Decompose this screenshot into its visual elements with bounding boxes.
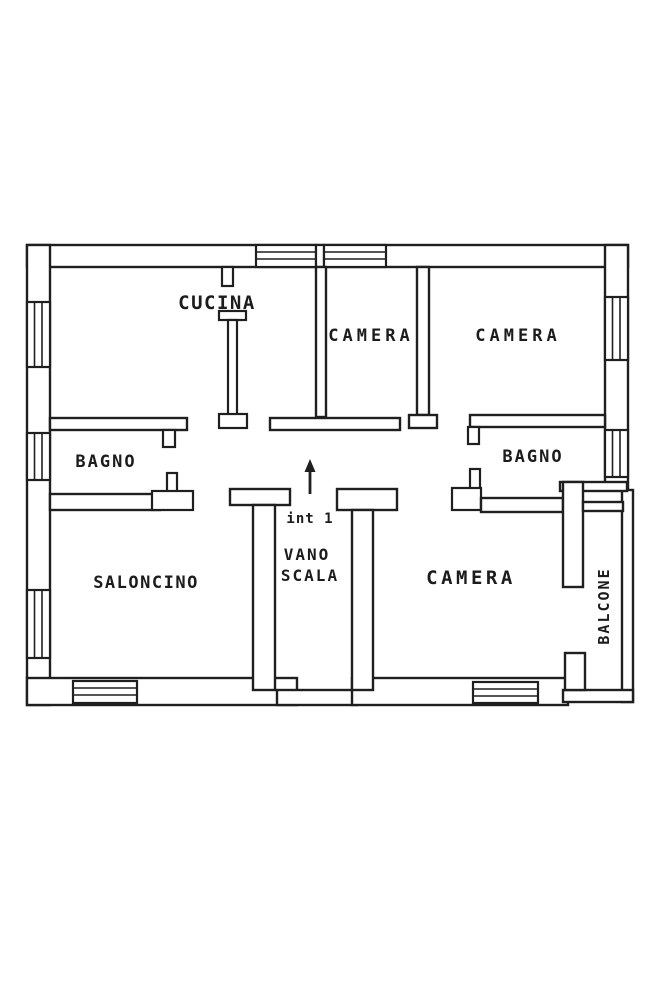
- window-icon-bottom-2: [473, 682, 538, 703]
- window-icon-bottom-1: [73, 681, 137, 703]
- wall-saloncino-top: [50, 494, 160, 510]
- room-label-saloncino: SALONCINO: [93, 573, 199, 593]
- wall-foot: [409, 415, 437, 428]
- room-label-camera-top-left: CAMERA: [328, 326, 413, 346]
- door-jamb: [163, 430, 175, 447]
- door-jamb-balcone: [565, 653, 585, 690]
- room-label-balcone: BALCONE: [595, 567, 613, 644]
- window-symbols: [27, 245, 628, 703]
- window-icon-top-2: [324, 245, 386, 267]
- room-label-camera-bottom: CAMERA: [426, 567, 516, 589]
- room-label-vano: VANO: [284, 545, 331, 564]
- window-icon-right-1: [605, 297, 628, 360]
- wall-stairwell-left: [230, 489, 290, 690]
- door-jamb-cucina: [222, 267, 233, 286]
- wall-segment-bottom-stair: [277, 690, 357, 705]
- exterior-walls: [27, 245, 633, 705]
- wall-corridor-upper-mid: [270, 418, 400, 430]
- scanned-floor-plan-page: CUCINA CAMERA CAMERA BAGNO BAGNO SALONCI…: [0, 0, 666, 999]
- door-jamb: [468, 427, 479, 444]
- window-icon-left-1: [27, 302, 50, 367]
- room-labels: CUCINA CAMERA CAMERA BAGNO BAGNO SALONCI…: [75, 292, 613, 645]
- window-icon-top-1: [256, 245, 316, 267]
- door-jamb-saloncino: [152, 473, 193, 510]
- wall-segment-balcony-right: [622, 490, 633, 702]
- floor-plan-drawing: CUCINA CAMERA CAMERA BAGNO BAGNO SALONCI…: [0, 0, 666, 999]
- window-icon-left-2: [27, 433, 50, 480]
- wall-stairwell-right: [337, 489, 397, 690]
- room-label-bagno-right: BAGNO: [502, 447, 563, 467]
- wall-cucina-divider: [219, 311, 247, 428]
- wall-cucina-camera1: [316, 267, 326, 417]
- entrance-unit-label: int 1: [286, 511, 333, 527]
- wall-segment-balcony-bottom: [563, 690, 633, 702]
- window-icon-right-2: [605, 430, 628, 477]
- entrance-arrow-icon: [305, 459, 316, 494]
- wall-camera-balcone: [563, 482, 583, 587]
- room-label-scala: SCALA: [281, 566, 339, 585]
- room-label-bagno-left: BAGNO: [75, 452, 136, 472]
- wall-balcone-top: [583, 502, 623, 511]
- room-label-camera-top-right: CAMERA: [475, 326, 560, 346]
- wall-camera1-camera2: [417, 267, 429, 415]
- window-mullion: [316, 245, 324, 267]
- window-icon-left-3: [27, 590, 50, 658]
- wall-camera2-bagno: [470, 415, 605, 427]
- wall-camera-bottom-top: [481, 498, 563, 512]
- door-jamb-camera-bottom: [452, 469, 481, 510]
- wall-corridor-upper-left: [50, 418, 187, 430]
- room-label-cucina: CUCINA: [178, 292, 256, 314]
